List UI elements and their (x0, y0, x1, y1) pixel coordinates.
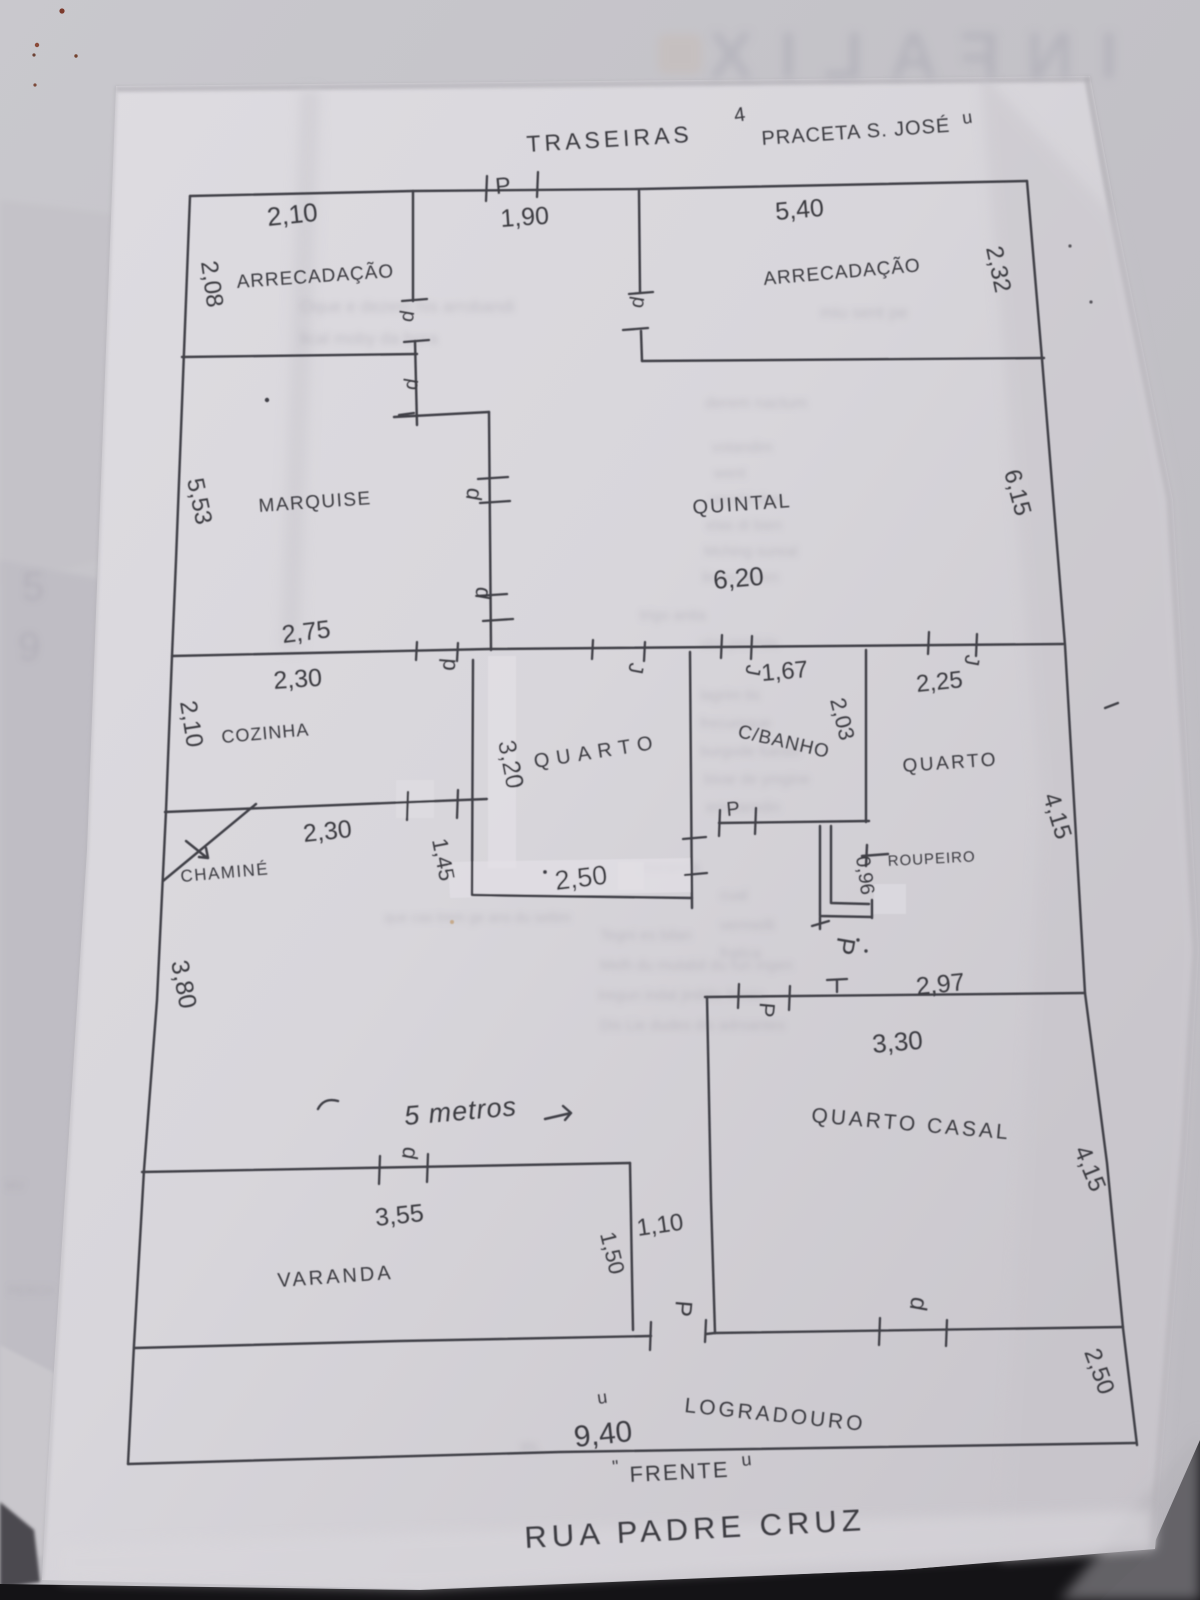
svg-text:vermeilli: vermeilli (720, 917, 775, 934)
svg-text:trigo anita: trigo anita (640, 607, 707, 624)
svg-text:elas di bien: elas di bien (706, 517, 782, 534)
svg-text:2,30: 2,30 (272, 664, 323, 695)
svg-text:3,30: 3,30 (871, 1025, 924, 1059)
svg-text:went: went (713, 465, 747, 482)
svg-text:2,10: 2,10 (265, 197, 318, 232)
svg-text:PERCH: PERCH (8, 1283, 54, 1298)
svg-text:miu sent pe: miu sent pe (820, 303, 908, 322)
svg-text:viro perdida: viro perdida (700, 635, 779, 652)
svg-text:derem nactum: derem nactum (705, 395, 807, 412)
svg-text:u: u (740, 1449, 752, 1470)
svg-text:Melh du mutabil du fun ingen: Melh du mutabil du fun ingen (600, 957, 793, 974)
svg-text:2,75: 2,75 (280, 615, 332, 649)
svg-text:Dis Lie dudes dis adroantes: Dis Lie dudes dis adroantes (600, 1017, 785, 1034)
svg-text:bivar de ymgine: bivar de ymgine (704, 771, 810, 788)
svg-text:P: P (754, 1002, 780, 1019)
svg-text:emstaredin: emstaredin (706, 799, 780, 816)
svg-text:MV: MV (5, 1178, 25, 1193)
svg-text:Tegni es bilan: Tegni es bilan (600, 927, 692, 944)
svg-text:FRENTE: FRENTE (629, 1457, 730, 1487)
svg-text:3,55: 3,55 (374, 1199, 425, 1232)
svg-text:cual: cual (720, 887, 748, 904)
svg-text:5: 5 (22, 565, 44, 609)
svg-text:9: 9 (18, 625, 40, 669)
svg-text:p: p (438, 658, 464, 672)
svg-text:2,50: 2,50 (553, 860, 609, 896)
svg-text:1,67: 1,67 (760, 656, 809, 687)
svg-text:2,97: 2,97 (915, 968, 966, 1001)
svg-text:2,30: 2,30 (302, 815, 353, 848)
svg-text:que cas trem ge ans du seltim: que cas trem ge ans du seltim (384, 909, 571, 925)
svg-text:6,20: 6,20 (712, 561, 765, 595)
svg-text:P: P (669, 1299, 697, 1317)
svg-text:votandim: votandim (712, 439, 773, 456)
svg-text:5,40: 5,40 (774, 194, 825, 226)
svg-text:lagrim tis: lagrim tis (700, 687, 760, 704)
svg-text:P: P (494, 172, 512, 199)
svg-text:INFALIX: INFALIX (683, 18, 1118, 92)
svg-text:9,40: 9,40 (572, 1415, 634, 1454)
svg-text:Mching sureal: Mching sureal (704, 543, 797, 560)
svg-text:lical moby da bora: lical moby da bora (300, 329, 439, 348)
svg-text:1,90: 1,90 (499, 202, 550, 233)
svg-text:2,25: 2,25 (915, 666, 964, 698)
svg-text:P: P (726, 798, 741, 821)
